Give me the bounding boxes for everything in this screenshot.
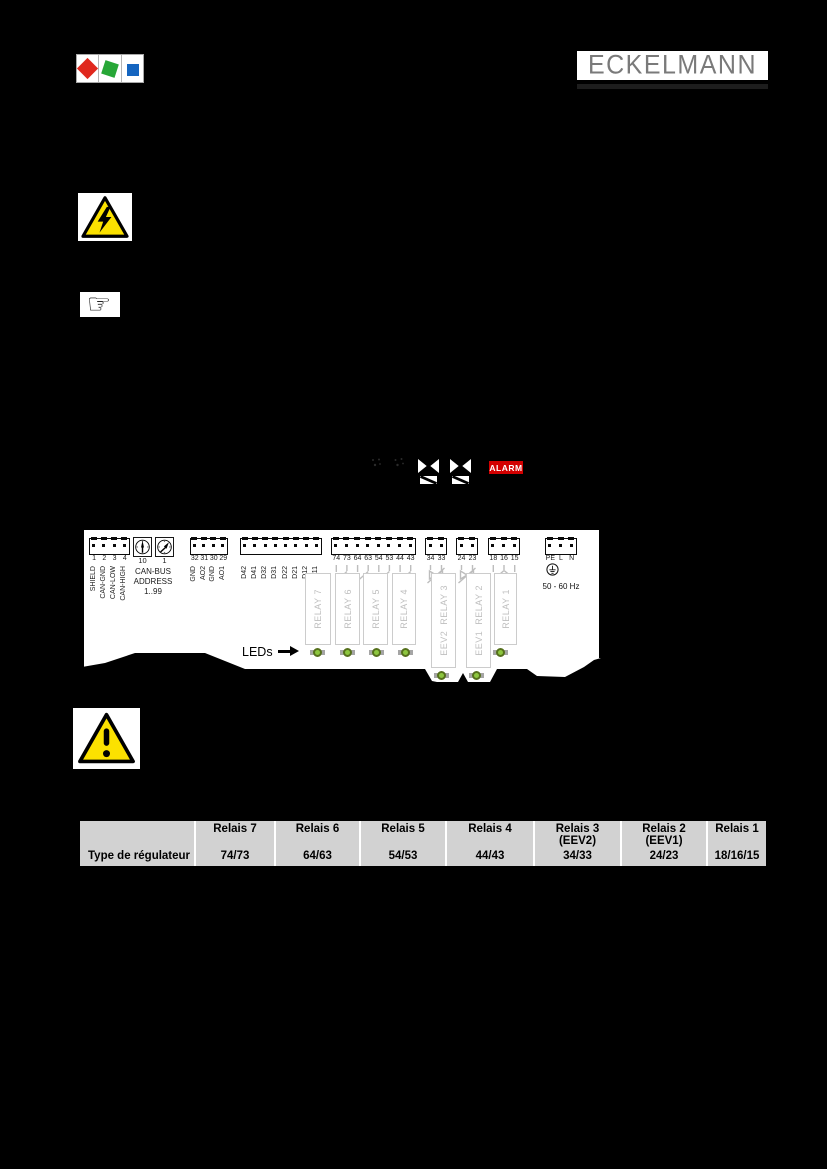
led-indicator [492, 648, 509, 657]
relay-box: RELAY 6 [335, 573, 360, 645]
table-column-header: Relais 1 [708, 824, 766, 836]
terminal-pin [387, 544, 390, 547]
terminal-pin [305, 544, 308, 547]
led-lens [372, 648, 381, 657]
table-column: Relais 774/73 [196, 821, 276, 866]
table-column: Relais 444/43 [447, 821, 535, 866]
terminal-screw [242, 537, 248, 540]
relay-label: EEV2 RELAY 3 [439, 585, 449, 656]
led-indicator [339, 648, 356, 657]
terminal-label: D32 [261, 566, 270, 579]
terminal-screw [121, 537, 127, 540]
table-column-value: 64/63 [276, 850, 359, 862]
led-indicator [309, 648, 326, 657]
terminal-block [89, 538, 130, 555]
terminal-block [190, 538, 228, 555]
led-lens [472, 671, 481, 680]
terminal-block [240, 538, 322, 555]
valve-icon [418, 458, 439, 485]
led-lens [437, 671, 446, 680]
terminal-pin [356, 544, 359, 547]
terminal-number: 29 [213, 555, 233, 562]
terminal-pin [274, 544, 277, 547]
terminal-label: D41 [251, 566, 260, 579]
terminal-label: CAN-GND [100, 566, 109, 599]
table-column-header: Relais 2(EEV1) [622, 824, 706, 847]
leds-label: LEDs [242, 645, 273, 659]
terminal-pin [409, 544, 412, 547]
terminal-screw [201, 537, 207, 540]
terminal-screw [511, 537, 517, 540]
terminal-number: 33 [432, 555, 452, 562]
pointing-hand-icon: ☞ [80, 292, 120, 317]
relay-label: RELAY 4 [399, 589, 409, 629]
terminal-screw [343, 537, 349, 540]
brand-logo [76, 54, 144, 83]
led-lens [313, 648, 322, 657]
terminal-pin [366, 544, 369, 547]
terminal-number: 4 [115, 555, 135, 562]
relay-box: RELAY 4 [392, 573, 416, 645]
terminal-pin [264, 544, 267, 547]
terminal-pin [398, 544, 401, 547]
terminal-screw [333, 537, 339, 540]
terminal-label: SHIELD [90, 566, 99, 591]
led-indicator [368, 648, 385, 657]
terminal-screw [283, 537, 289, 540]
terminal-screw [252, 537, 258, 540]
terminal-screw [490, 537, 496, 540]
terminal-pin [243, 544, 246, 547]
brand-logo-cell [77, 55, 99, 82]
terminal-screw [386, 537, 392, 540]
controller-terminal-diagram: 10 1 CAN-BUS ADDRESS 1..99 50 - 60 Hz LE… [82, 527, 601, 682]
high-voltage-warning-icon [78, 193, 132, 241]
terminal-screw [262, 537, 268, 540]
led-indicator [468, 671, 485, 680]
table-column-value: 54/53 [361, 850, 445, 862]
terminal-label: CAN-LOW [110, 566, 119, 599]
company-logo-underline [577, 84, 768, 89]
terminal-screw [191, 537, 197, 540]
relay-box: RELAY 1 [494, 573, 517, 645]
table-column-value: 74/73 [196, 850, 274, 862]
terminal-screw [365, 537, 371, 540]
terminal-screw [547, 537, 553, 540]
terminal-pin [284, 544, 287, 547]
terminal-screw [220, 537, 226, 540]
table-column-value: 44/43 [447, 850, 533, 862]
terminal-pin [123, 544, 126, 547]
terminal-pin [202, 544, 205, 547]
terminal-pin [113, 544, 116, 547]
terminal-label: D22 [282, 566, 291, 579]
valve-icon [450, 458, 471, 485]
led-lens [401, 648, 410, 657]
table-column-header: Relais 7 [196, 824, 274, 836]
terminal-pin [345, 544, 348, 547]
terminal-pin [548, 544, 551, 547]
terminal-screw [469, 537, 475, 540]
terminal-screw [558, 537, 564, 540]
terminal-screw [427, 537, 433, 540]
terminal-screw [210, 537, 216, 540]
relay-box: EEV2 RELAY 3 [431, 573, 456, 668]
terminal-number: 43 [401, 555, 421, 562]
leds-arrow-head [290, 646, 299, 656]
alarm-led-label: ALARM [489, 461, 523, 474]
table-row-label-cell: Type de régulateur [80, 821, 196, 866]
led-lens [343, 648, 352, 657]
brand-logo-cell [99, 55, 121, 82]
company-logo-text: ECKELMANN [588, 50, 757, 81]
red-diamond-icon [77, 58, 98, 79]
terminal-pin [513, 544, 516, 547]
display-symbol-faint-2 [393, 457, 405, 470]
terminal-pin [294, 544, 297, 547]
terminal-screw [313, 537, 319, 540]
terminal-screw [354, 537, 360, 540]
relay-box: RELAY 5 [363, 573, 388, 645]
led-indicator [397, 648, 414, 657]
terminal-pin [502, 544, 505, 547]
terminal-label: D42 [241, 566, 250, 579]
terminal-pin [460, 544, 463, 547]
terminal-block [488, 538, 520, 555]
table-column: Relais 664/63 [276, 821, 361, 866]
terminal-screw [375, 537, 381, 540]
terminal-screw [438, 537, 444, 540]
terminal-screw [397, 537, 403, 540]
terminal-label: D21 [292, 566, 301, 579]
terminal-pin [429, 544, 432, 547]
led-indicator [433, 671, 450, 680]
table-column-header: Relais 4 [447, 824, 533, 836]
table-column-header: Relais 6 [276, 824, 359, 836]
terminal-pin [570, 544, 573, 547]
table-column: Relais 2(EEV1)24/23 [622, 821, 708, 866]
terminal-pin [559, 544, 562, 547]
terminal-pin [102, 544, 105, 547]
terminal-pin [491, 544, 494, 547]
terminal-pin [193, 544, 196, 547]
terminal-label: GND [209, 566, 218, 582]
table-column-header: Relais 3(EEV2) [535, 824, 620, 847]
terminal-screw [293, 537, 299, 540]
relay-label: EEV1 RELAY 2 [474, 585, 484, 656]
terminal-pin [471, 544, 474, 547]
green-square-icon [101, 60, 119, 78]
table-column-subheader: (EEV2) [535, 836, 620, 848]
terminal-screw [458, 537, 464, 540]
frequency-label: 50 - 60 Hz [522, 582, 600, 591]
terminal-pin [92, 544, 95, 547]
terminal-screw [568, 537, 574, 540]
terminal-pin [315, 544, 318, 547]
hand-glyph: ☞ [87, 292, 111, 317]
terminal-number: N [562, 555, 582, 562]
terminal-screw [407, 537, 413, 540]
alarm-text: ALARM [489, 463, 522, 473]
terminal-pin [334, 544, 337, 547]
terminal-block [425, 538, 447, 555]
exclamation-triangle-icon [76, 711, 137, 766]
lightning-triangle-icon [80, 195, 130, 239]
caution-warning-icon [73, 708, 140, 769]
terminal-screw [91, 537, 97, 540]
terminal-pin [440, 544, 443, 547]
terminal-screw [101, 537, 107, 540]
table-column-value: 34/33 [535, 850, 620, 862]
terminal-number: 23 [463, 555, 483, 562]
terminal-screw [303, 537, 309, 540]
terminal-pin [212, 544, 215, 547]
terminal-label: AO2 [200, 566, 209, 580]
display-symbol-faint-1 [370, 457, 382, 470]
table-column-header: Relais 5 [361, 824, 445, 836]
relay-label: RELAY 5 [371, 589, 381, 629]
terminal-block [545, 538, 577, 555]
terminal-pin [221, 544, 224, 547]
table-column-value: 24/23 [622, 850, 706, 862]
blue-square-icon [127, 64, 139, 76]
terminal-number: 15 [505, 555, 525, 562]
table-column-subheader: (EEV1) [622, 836, 706, 848]
terminal-pin [253, 544, 256, 547]
relay-label: RELAY 7 [313, 589, 323, 629]
table-column: Relais 554/53 [361, 821, 447, 866]
relay-label: RELAY 1 [501, 589, 511, 629]
terminal-screw [272, 537, 278, 540]
terminal-screw [501, 537, 507, 540]
table-row-label: Type de régulateur [88, 850, 190, 862]
relay-assignment-table: Type de régulateurRelais 774/73Relais 66… [78, 818, 768, 870]
led-lens [496, 648, 505, 657]
table-column: Relais 3(EEV2)34/33 [535, 821, 622, 866]
document-page: ECKELMANN ☞ ALARM [0, 0, 827, 1169]
terminal-label: D31 [271, 566, 280, 579]
earth-ground-icon [546, 563, 559, 577]
table-column: Relais 118/16/15 [708, 821, 766, 866]
relay-box: RELAY 7 [305, 573, 331, 645]
relay-box: EEV1 RELAY 2 [466, 573, 491, 668]
terminal-label: GND [190, 566, 199, 582]
brand-logo-cell [122, 55, 143, 82]
terminal-screw [111, 537, 117, 540]
company-logo: ECKELMANN [577, 51, 768, 80]
table-column-value: 18/16/15 [708, 850, 766, 862]
terminal-block [456, 538, 478, 555]
terminal-label: AO1 [219, 566, 228, 580]
relay-label: RELAY 6 [343, 589, 353, 629]
terminal-pin [377, 544, 380, 547]
terminal-label: CAN-HIGH [120, 566, 129, 601]
terminal-block [331, 538, 416, 555]
